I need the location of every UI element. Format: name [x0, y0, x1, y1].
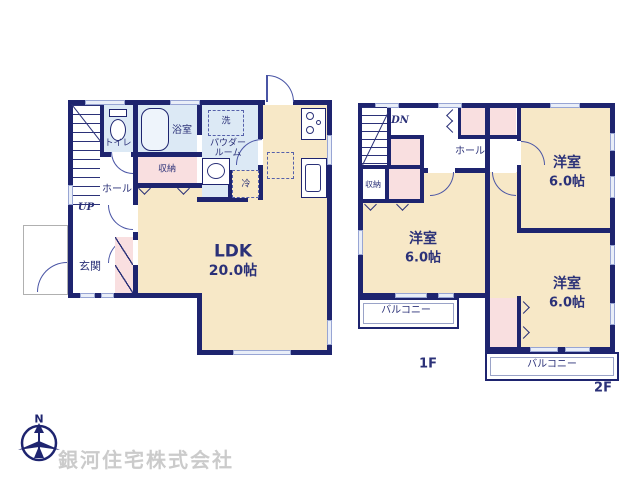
powder-room-label-1: パウダー: [210, 140, 246, 149]
wall: [420, 135, 424, 203]
closet-2f-bedroom: [490, 298, 517, 348]
door-opening: [133, 240, 138, 265]
stove-burner-icon: [306, 112, 314, 120]
storage-2f-label: 収納: [365, 181, 381, 189]
storage-1f-label: 収納: [158, 166, 176, 175]
window: [170, 100, 200, 105]
laundry-label: 洗: [221, 118, 230, 127]
entrance-label: 玄関: [79, 261, 101, 272]
window: [80, 293, 95, 298]
door-swing-hall-ldk: [108, 205, 133, 230]
window: [550, 103, 580, 108]
stairs-down-label: DN: [391, 116, 409, 126]
vanity-sink-icon: [207, 163, 225, 179]
compass-north-label: N: [34, 414, 43, 425]
wall: [458, 135, 521, 139]
stove-icon: [301, 108, 326, 140]
closet-2f-hall: [489, 107, 516, 135]
window: [530, 347, 558, 352]
floorplan-canvas: トイレ 浴室 洗 パウダー ルーム 収納 ホール UP 玄関 冷 LDK 20.…: [0, 0, 640, 480]
window: [610, 303, 615, 325]
closet-2f-hall: [461, 107, 486, 135]
window: [233, 350, 291, 355]
window: [358, 230, 363, 255]
wall: [197, 293, 202, 355]
ldk-name-label: LDK: [214, 244, 252, 261]
window: [610, 245, 615, 265]
bedroom-left-size: 6.0帖: [405, 252, 441, 265]
window: [565, 347, 590, 352]
bath-label: 浴室: [172, 126, 192, 136]
room-ldk-lower: [202, 295, 327, 352]
wall: [517, 228, 615, 233]
kitchen-counter-space: [267, 152, 294, 179]
stairs-1f: [73, 105, 100, 205]
door-opening: [197, 135, 202, 152]
entrance-closet: [115, 237, 133, 265]
window: [327, 135, 332, 165]
floor1-label: 1F: [419, 358, 437, 371]
window: [327, 320, 332, 345]
window: [395, 293, 427, 298]
balcony-left-label: バルコニー: [381, 306, 431, 316]
bathtub-icon: [141, 108, 169, 151]
wall: [485, 103, 490, 352]
floor2-label: 2F: [594, 382, 612, 395]
wall: [385, 165, 389, 203]
wall: [517, 103, 521, 233]
window: [438, 103, 462, 108]
entrance-closet: [115, 265, 133, 293]
stove-burner-icon: [316, 120, 321, 125]
closet-2f: [389, 169, 420, 199]
toilet-label: トイレ: [104, 140, 131, 149]
wall: [100, 100, 104, 157]
wall: [133, 100, 138, 298]
window: [610, 133, 615, 151]
window: [610, 176, 615, 198]
fridge-label: 冷: [241, 181, 250, 190]
wall: [458, 103, 461, 139]
company-name: 銀河住宅株式会社: [58, 444, 234, 473]
wall: [358, 165, 422, 169]
window: [438, 293, 454, 298]
window: [101, 293, 114, 298]
door-opening: [133, 205, 138, 232]
bifold-door-mark: [446, 120, 459, 133]
ldk-size-label: 20.0帖: [209, 264, 258, 278]
closet-2f: [389, 139, 420, 165]
door-swing-toilet: [111, 152, 133, 174]
hall-1f-label: ホール: [102, 185, 132, 195]
toilet-tank-icon: [109, 109, 127, 117]
balcony-bottom-label: バルコニー: [527, 360, 577, 370]
bedroom-bottom-right-name: 洋室: [553, 277, 581, 291]
bedroom-top-right-name: 洋室: [553, 156, 581, 170]
kitchen-sink-icon: [305, 164, 321, 192]
bedroom-top-right-size: 6.0帖: [549, 176, 585, 189]
bedroom-bottom-right-size: 6.0帖: [549, 297, 585, 310]
stove-burner-icon: [306, 126, 314, 134]
powder-room-label-2: ルーム: [215, 150, 242, 159]
door-swing-backdoor: [267, 75, 294, 102]
stairs-up-label: UP: [78, 203, 94, 213]
bedroom-left-name: 洋室: [409, 232, 437, 246]
hall-2f-label: ホール: [455, 147, 485, 157]
